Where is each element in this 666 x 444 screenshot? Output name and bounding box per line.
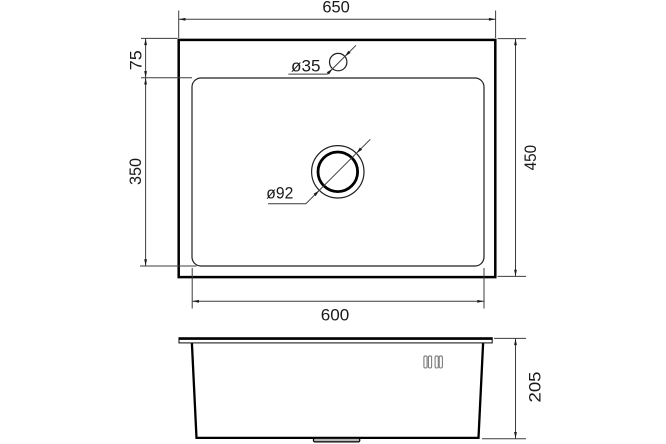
svg-text:350: 350	[126, 158, 145, 185]
svg-text:600: 600	[321, 306, 350, 325]
svg-text:ø35: ø35	[291, 56, 321, 75]
svg-text:ø92: ø92	[266, 184, 293, 203]
svg-text:75: 75	[127, 50, 146, 70]
svg-text:450: 450	[521, 145, 540, 171]
svg-text:205: 205	[525, 372, 544, 403]
svg-text:650: 650	[322, 0, 350, 17]
